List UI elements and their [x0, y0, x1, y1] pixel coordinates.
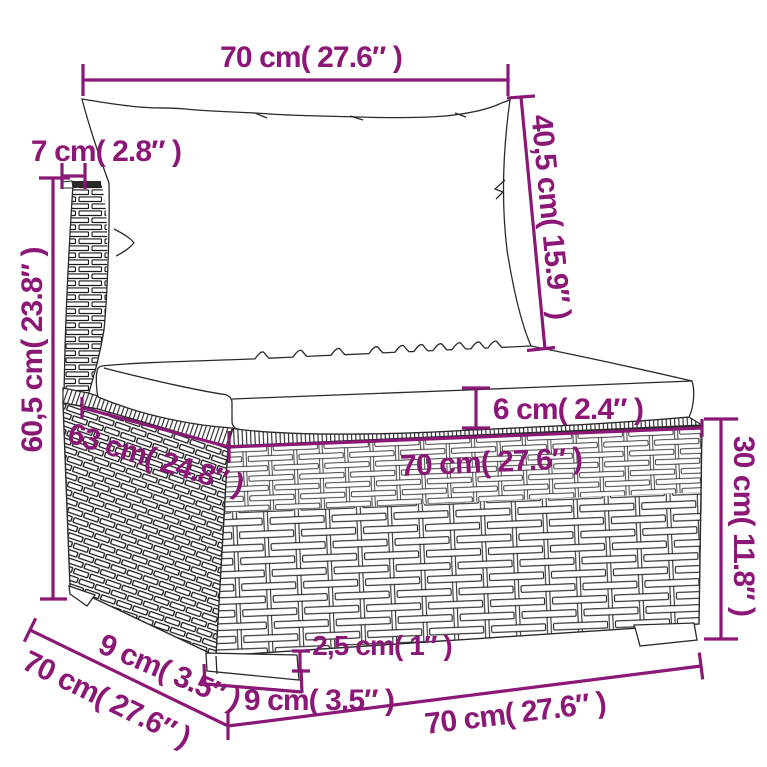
svg-text:7 cm( 2.8″ ): 7 cm( 2.8″ ) [31, 135, 181, 168]
svg-text:60,5 cm( 23.8″ ): 60,5 cm( 23.8″ ) [16, 247, 49, 452]
svg-text:70 cm( 27.6″ ): 70 cm( 27.6″ ) [220, 41, 402, 74]
svg-text:30 cm( 11.8″ ): 30 cm( 11.8″ ) [727, 436, 760, 616]
svg-text:2,5 cm( 1″ ): 2,5 cm( 1″ ) [312, 630, 452, 661]
svg-text:9 cm( 3.5″ ): 9 cm( 3.5″ ) [244, 684, 394, 717]
svg-text:6 cm( 2.4″ ): 6 cm( 2.4″ ) [493, 393, 643, 426]
